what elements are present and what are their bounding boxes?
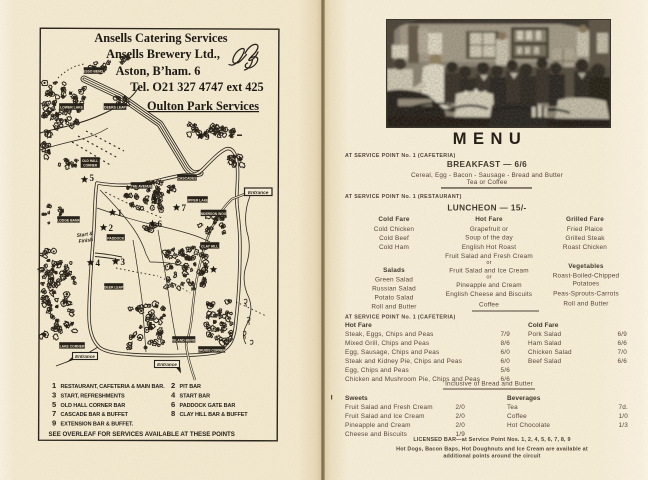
svg-text:Cold Chicken: Cold Chicken (374, 226, 415, 233)
svg-text:2/0: 2/0 (456, 404, 466, 411)
svg-text:Fruit Salad and Fresh Cream: Fruit Salad and Fresh Cream (345, 404, 433, 411)
svg-text:Cold Beef: Cold Beef (379, 235, 409, 242)
svg-text:Tea or Coffee: Tea or Coffee (467, 179, 508, 186)
svg-text:AT SERVICE POINT No. 1 (CAFETE: AT SERVICE POINT No. 1 (CAFETERIA) (345, 315, 456, 321)
svg-text:Fruit Salad and Ice Cream: Fruit Salad and Ice Cream (345, 413, 425, 420)
svg-text:Pineapple and Cream: Pineapple and Cream (456, 282, 522, 289)
svg-text:6/9: 6/9 (618, 331, 628, 338)
svg-text:or: or (486, 260, 491, 266)
svg-text:additional points around the c: additional points around the circuit (443, 454, 540, 460)
svg-text:LICENSED BAR—at Service Point: LICENSED BAR—at Service Point Nos. 1, 2,… (413, 437, 570, 443)
svg-text:1/3: 1/3 (619, 422, 629, 429)
svg-text:Coffee: Coffee (507, 413, 527, 420)
svg-text:Soup of the day: Soup of the day (465, 235, 513, 242)
svg-text:Salads: Salads (383, 267, 405, 274)
svg-text:Potatoes: Potatoes (573, 281, 600, 288)
svg-text:Hot Fare: Hot Fare (475, 216, 503, 223)
svg-text:Cereal, Egg - Bacon - Sausage: Cereal, Egg - Bacon - Sausage - Bread an… (411, 172, 564, 179)
svg-text:Peas-Sprouts-Carrots: Peas-Sprouts-Carrots (553, 291, 619, 298)
svg-text:Fruit Salad and Ice Cream: Fruit Salad and Ice Cream (449, 268, 529, 275)
svg-text:6/0: 6/0 (501, 349, 511, 356)
svg-text:Egg, Sausage, Chips and Peas: Egg, Sausage, Chips and Peas (345, 349, 439, 356)
svg-text:7/9: 7/9 (501, 331, 511, 338)
svg-text:Roast-Boiled-Chipped: Roast-Boiled-Chipped (553, 273, 620, 280)
svg-text:Sweets: Sweets (345, 395, 368, 402)
svg-text:Vegetables: Vegetables (568, 263, 604, 270)
svg-text:Cold Fare: Cold Fare (528, 322, 559, 329)
svg-text:Potato Salad: Potato Salad (375, 295, 414, 302)
svg-text:Cold Fare: Cold Fare (378, 216, 410, 223)
svg-text:8/6: 8/6 (501, 340, 511, 347)
svg-text:1/0: 1/0 (619, 413, 629, 420)
svg-text:Chicken Salad: Chicken Salad (528, 349, 572, 356)
svg-text:AT SERVICE POINT No. 1 (CAFETE: AT SERVICE POINT No. 1 (CAFETERIA) (345, 153, 456, 159)
svg-text:Hot Chocolate: Hot Chocolate (507, 422, 550, 429)
svg-text:Hot Dogs, Bacon Baps, Hot Doug: Hot Dogs, Bacon Baps, Hot Doughnuts and … (396, 447, 588, 453)
svg-text:Cold Ham: Cold Ham (379, 244, 409, 251)
svg-text:7d.: 7d. (619, 404, 629, 411)
svg-text:English Hot Roast: English Hot Roast (462, 244, 517, 251)
svg-text:Grapefruit or: Grapefruit or (470, 226, 509, 233)
svg-text:Roll and Butter: Roll and Butter (371, 304, 417, 311)
svg-text:Inclusive of Bread and Butter: Inclusive of Bread and Butter (445, 381, 534, 388)
svg-text:Grilled Fare: Grilled Fare (566, 216, 604, 223)
svg-text:AT SERVICE POINT No. 1 (RESTAU: AT SERVICE POINT No. 1 (RESTAURANT) (345, 194, 462, 200)
svg-text:or: or (486, 275, 491, 281)
svg-text:Egg, Chips and Peas: Egg, Chips and Peas (345, 367, 409, 374)
svg-text:2/0: 2/0 (456, 413, 466, 420)
svg-text:Mixed Grill, Chips and Peas: Mixed Grill, Chips and Peas (345, 340, 429, 347)
svg-text:Coffee: Coffee (479, 302, 499, 309)
svg-text:Pork Salad: Pork Salad (528, 331, 562, 338)
svg-text:Fruit Salad and Fresh Cream: Fruit Salad and Fresh Cream (445, 253, 533, 260)
svg-text:7/0: 7/0 (618, 349, 628, 356)
svg-text:6/6: 6/6 (618, 340, 628, 347)
svg-text:Ham Salad: Ham Salad (528, 340, 562, 347)
svg-text:5/6: 5/6 (501, 367, 511, 374)
svg-text:Tea: Tea (507, 404, 518, 411)
svg-text:Russian Salad: Russian Salad (372, 286, 416, 293)
svg-text:Pineapple and Cream: Pineapple and Cream (345, 422, 411, 429)
svg-text:Fried Plaice: Fried Plaice (567, 226, 603, 233)
svg-text:BREAKFAST — 6/6: BREAKFAST — 6/6 (447, 160, 527, 169)
svg-text:Cheese and Biscuits: Cheese and Biscuits (345, 431, 407, 438)
svg-text:6/6: 6/6 (618, 358, 628, 365)
svg-text:Grilled Steak: Grilled Steak (565, 235, 605, 242)
svg-text:Steak and Kidney Pie, Chips an: Steak and Kidney Pie, Chips and Peas (345, 358, 462, 365)
svg-text:Roast Chicken: Roast Chicken (563, 244, 607, 251)
svg-text:English Cheese and Biscuits: English Cheese and Biscuits (446, 291, 532, 298)
svg-text:6/0: 6/0 (501, 358, 511, 365)
svg-text:Beef Salad: Beef Salad (528, 358, 562, 365)
svg-text:Beverages: Beverages (507, 395, 541, 402)
svg-text:LUNCHEON — 15/-: LUNCHEON — 15/- (447, 204, 526, 213)
svg-text:Green Salad: Green Salad (375, 277, 413, 284)
svg-text:Roll and Butter: Roll and Butter (563, 301, 609, 308)
svg-text:2/0: 2/0 (456, 422, 466, 429)
svg-text:Hot Fare: Hot Fare (345, 322, 372, 329)
svg-text:MENU: MENU (453, 130, 528, 148)
svg-text:Steak, Eggs, Chips and Peas: Steak, Eggs, Chips and Peas (345, 331, 434, 338)
